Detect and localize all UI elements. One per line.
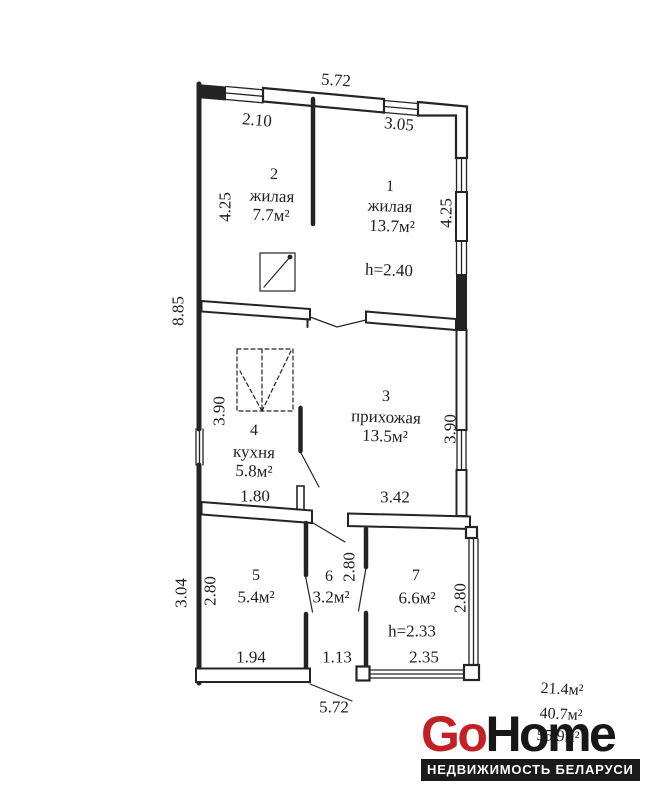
dim-room5-depth: 2.80 [202, 576, 219, 606]
veranda-post-bottom-left [357, 667, 370, 681]
room2-area: 7.7м² [252, 206, 290, 224]
veranda-post-bottom-right [464, 665, 479, 680]
cross-wall-right [366, 312, 456, 331]
right-wall-solid [456, 274, 467, 330]
logo-go-text: Go [421, 706, 485, 762]
top-left-corner [197, 84, 227, 101]
room4-number: 4 [250, 423, 259, 439]
room3-name: прихожая [351, 407, 421, 426]
dim-room2-depth: 4.25 [217, 192, 234, 222]
hall-room6-door-leaf [313, 523, 345, 542]
room2-stove-icon [260, 253, 295, 291]
top-window-left [226, 87, 263, 103]
dim-left-overall: 8.85 [170, 296, 187, 326]
room7-top-wall [348, 514, 470, 530]
dim-room6-depth: 2.80 [341, 552, 358, 582]
dim-room1-width: 3.05 [383, 114, 414, 134]
room3-number: 3 [382, 389, 391, 405]
room5-bottom-wall [196, 669, 310, 683]
dim-hall-width: 3.42 [380, 489, 410, 506]
dim-bottom-overall: 5.72 [319, 699, 349, 716]
gohome-logo: GoHome НЕДВИЖИМОСТЬ БЕЛАРУСИ [421, 711, 640, 781]
veranda-post-top-right [466, 527, 477, 538]
room1-name: жилая [367, 197, 412, 216]
dim-annex-left: 3.04 [173, 578, 190, 608]
windows [196, 87, 467, 471]
room5-number: 5 [252, 568, 260, 584]
dim-room7-width: 2.35 [409, 649, 439, 666]
top-right-corner [418, 102, 467, 158]
room5-door-leaf [306, 576, 313, 612]
dim-kitchen-depth: 3.90 [211, 396, 228, 426]
gohome-wordmark: GoHome [421, 711, 640, 758]
room1-ceiling-height: h=2.40 [365, 261, 413, 280]
summary-living-area: 21.4м² [540, 681, 584, 699]
right-wall-band-lower [457, 470, 467, 516]
dim-room2-width: 2.10 [241, 110, 272, 130]
room2-number: 2 [270, 167, 279, 183]
cross-wall-threshold [310, 317, 366, 327]
dim-room6-width: 1.13 [322, 649, 352, 666]
room7-door-leaf [359, 568, 367, 611]
top-wall-pier [263, 88, 384, 113]
right-wall-pier [456, 192, 467, 241]
kitchen-door-leaf [301, 453, 319, 487]
room2-name: жилая [249, 187, 294, 206]
room1-number: 1 [386, 179, 395, 195]
room5-area: 5.4м² [237, 589, 274, 606]
dim-room5-width: 1.94 [236, 649, 266, 666]
room6-area: 3.2м² [312, 589, 349, 606]
dim-room1-depth: 4.25 [438, 198, 455, 228]
room4-name: кухня [233, 443, 276, 461]
dim-hall-depth: 3.90 [442, 414, 459, 444]
stove-symbols [237, 253, 295, 411]
cross-wall-left [202, 301, 311, 320]
room4-area: 5.8м² [235, 462, 273, 480]
room7-ceiling-height: h=2.33 [388, 623, 436, 640]
right-window-lower [457, 241, 467, 274]
room6-number: 6 [325, 569, 333, 585]
room7-area: 6.6м² [398, 590, 435, 607]
logo-home-text: Home [485, 706, 614, 762]
room1-area: 13.7м² [369, 217, 415, 236]
veranda-bottom-glazing [370, 670, 466, 678]
kitchen-door-pier [297, 486, 304, 510]
dim-top-overall: 5.72 [321, 70, 352, 89]
floorplan-page: 2 жилая 7.7м² 1 жилая 13.7м² h=2.40 3 пр… [0, 0, 659, 800]
room7-number: 7 [412, 568, 420, 584]
logo-tagline: НЕДВИЖИМОСТЬ БЕЛАРУСИ [421, 759, 640, 781]
dim-kitchen-width: 1.80 [240, 488, 270, 505]
room3-area: 13.5м² [362, 427, 408, 446]
veranda-right-glazing [469, 539, 478, 666]
left-window-kitchen [196, 429, 203, 465]
dim-room7-depth: 2.80 [452, 583, 469, 613]
kitchen-stove-icon [237, 349, 293, 411]
right-window-upper [457, 158, 467, 192]
